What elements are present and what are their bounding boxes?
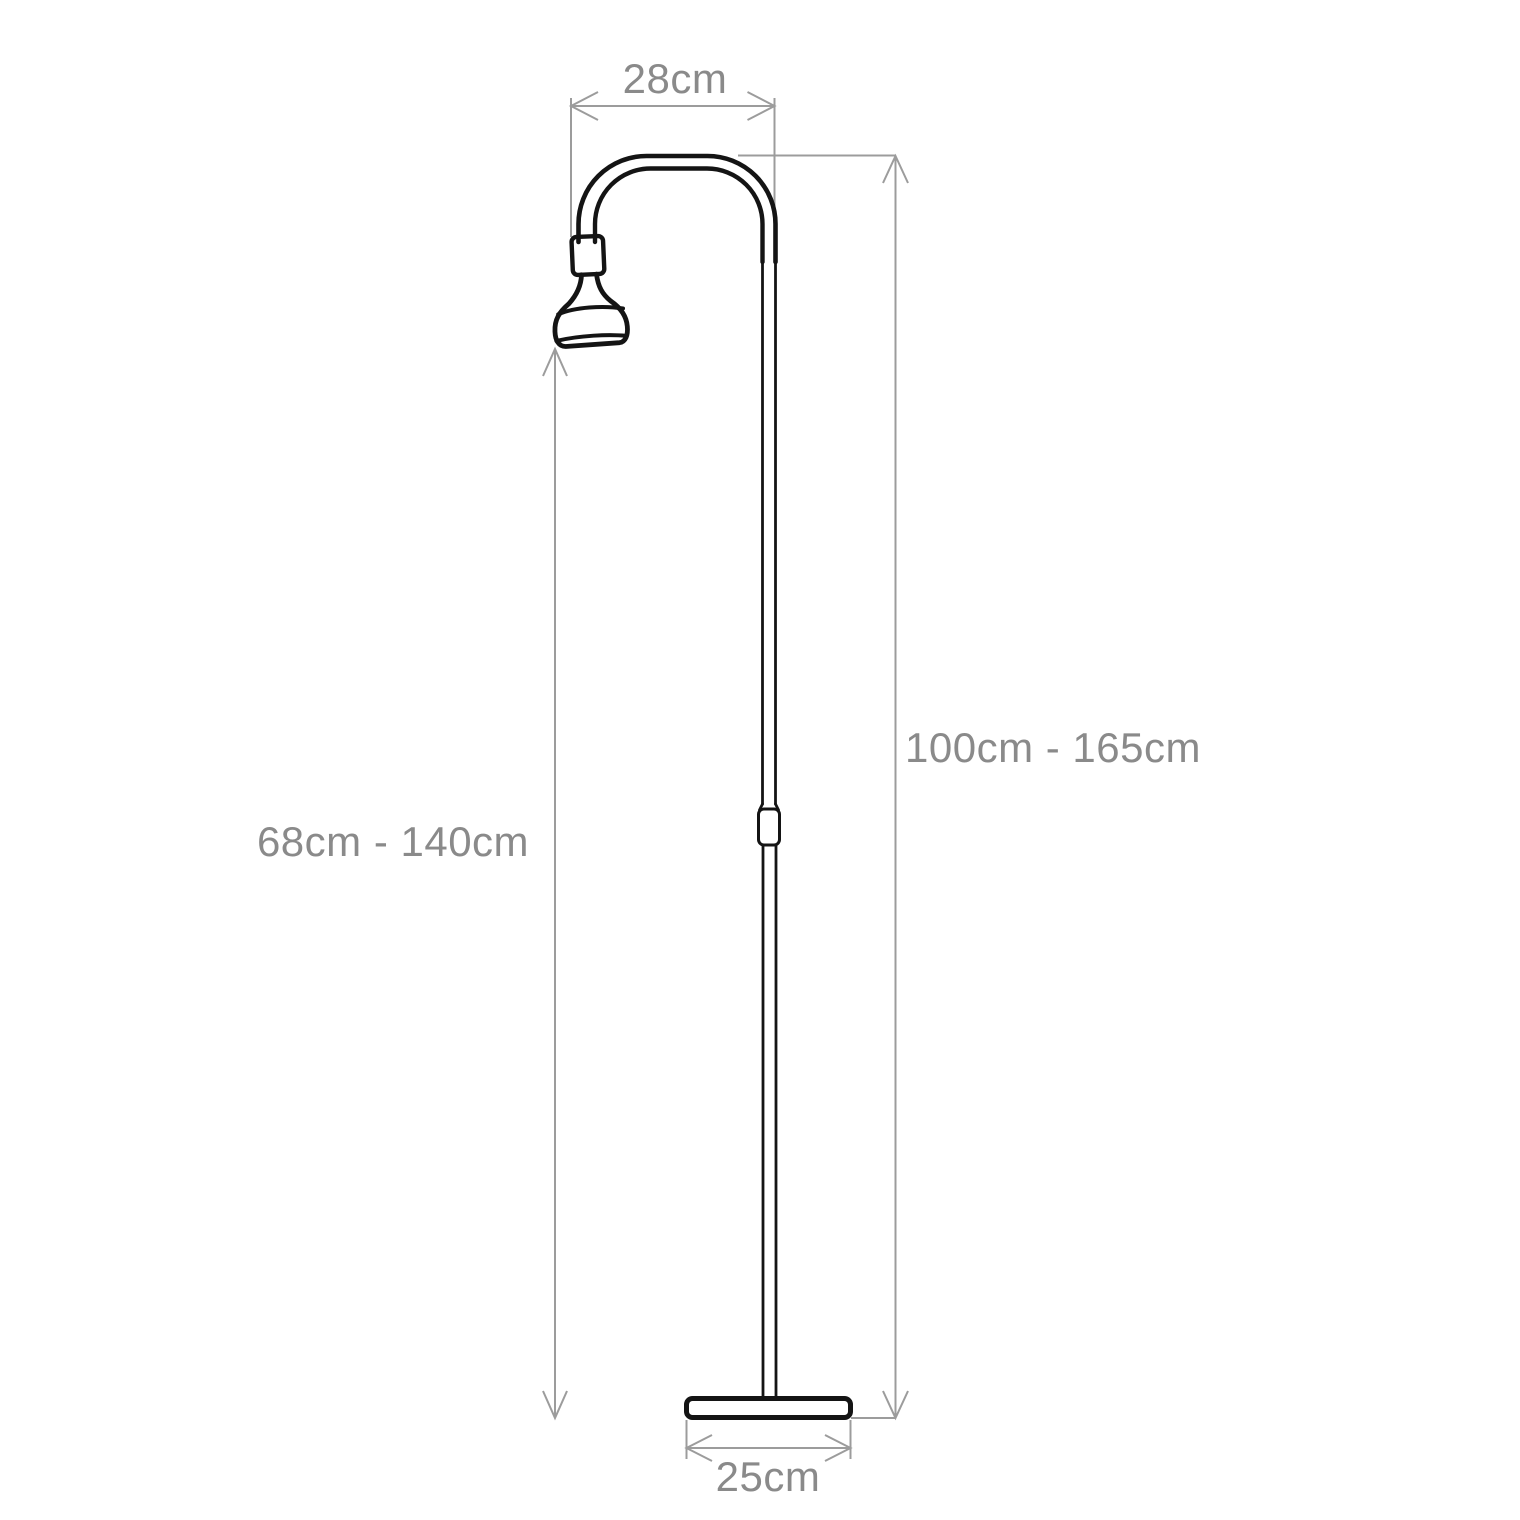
lamp-bulb-face-line (556, 334, 626, 341)
lamp-arm-outer-line (579, 156, 776, 262)
lamp-head (551, 235, 628, 347)
bulb-height-label: 68cm - 140cm (257, 818, 529, 865)
dimension-annotations: 28cm 100cm - 165cm 68cm - 140cm (257, 55, 1201, 1500)
lamp-arm-inner-line (595, 169, 763, 263)
floor-lamp-drawing (551, 156, 851, 1418)
base-width-dimension: 25cm (687, 1420, 851, 1500)
lamp-base (687, 1399, 851, 1418)
arm-width-label: 28cm (623, 55, 728, 102)
height-adjust-joint (759, 809, 780, 845)
arm-width-dimension: 28cm (571, 55, 775, 238)
base-width-label: 25cm (716, 1453, 821, 1500)
bulb-height-dimension: 68cm - 140cm (257, 349, 567, 1418)
diagram-canvas: 28cm 100cm - 165cm 68cm - 140cm (0, 0, 1520, 1520)
floor-lamp-dimension-diagram: 28cm 100cm - 165cm 68cm - 140cm (0, 0, 1520, 1520)
overall-height-dimension: 100cm - 165cm (738, 156, 1201, 1419)
overall-height-label: 100cm - 165cm (905, 724, 1201, 771)
